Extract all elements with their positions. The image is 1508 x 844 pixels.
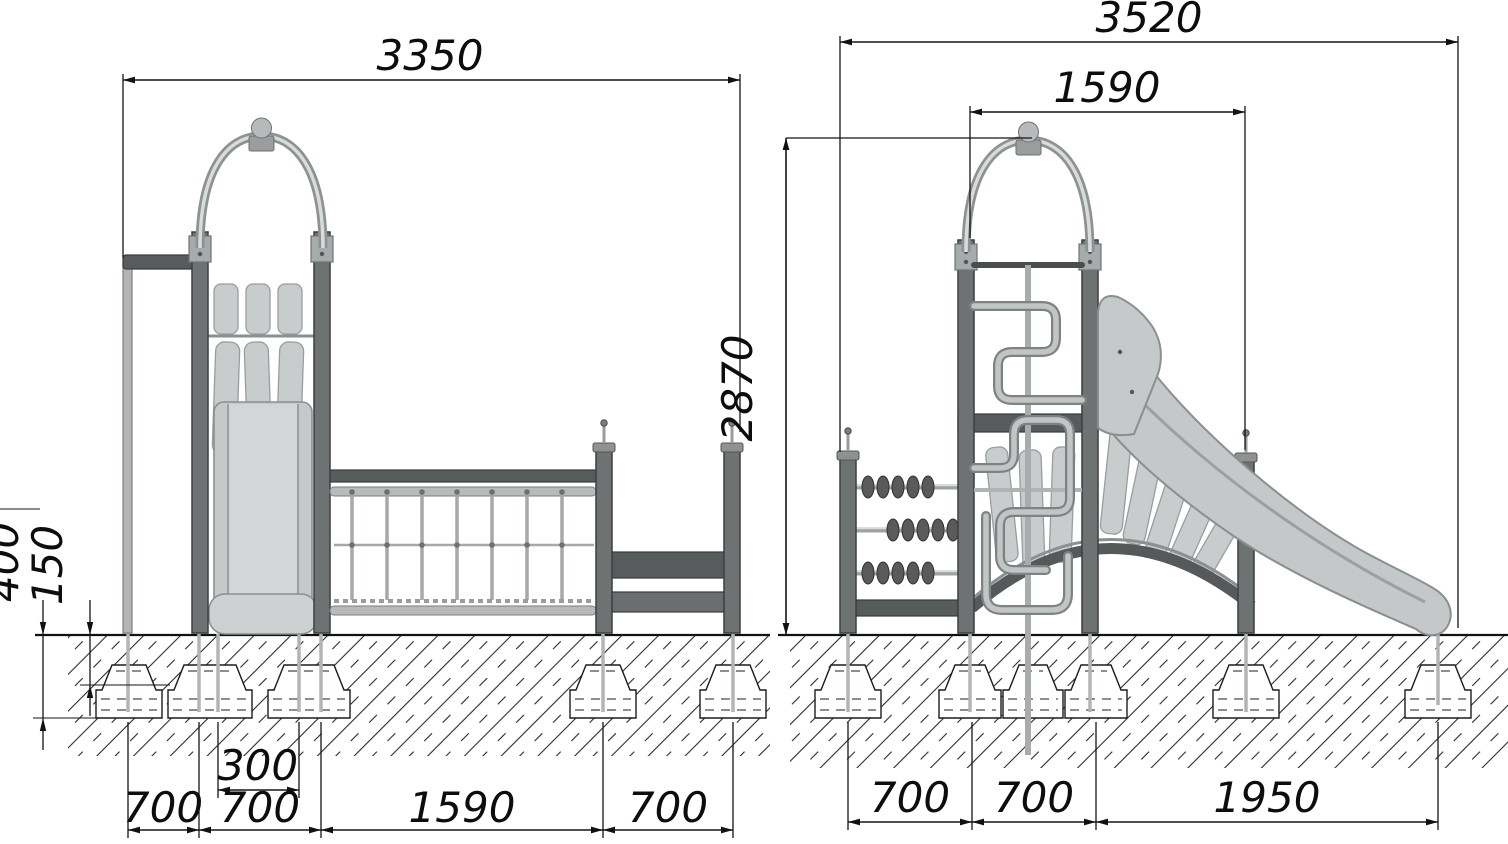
dim-side-overall-height-text: 2870 (713, 335, 762, 442)
slide-end-lip (209, 594, 317, 634)
dim-front-overall-width-text: 3350 (377, 31, 484, 80)
slide-end-chute (228, 404, 298, 600)
installation-drawing: 3350 400 150 300 (0, 0, 1508, 844)
net-top-tube (330, 487, 596, 496)
end-post-left (596, 450, 612, 633)
end-frame-bar-lower (612, 592, 724, 612)
end-frame-bar-upper (612, 552, 724, 578)
side-post-left (958, 240, 974, 633)
handrail-pole (123, 262, 132, 633)
arch-finial-ball (252, 118, 272, 138)
side-post-right (1082, 240, 1098, 633)
side-view: 3520 1590 2870 700 (713, 0, 1508, 830)
end-frame (593, 420, 743, 633)
side-ground-section (778, 635, 1508, 768)
dim-side-span3-text: 1950 (1214, 773, 1321, 822)
abacus-post (840, 458, 856, 633)
front-view: 3350 400 150 300 (0, 31, 770, 838)
net-top-rail (330, 470, 596, 482)
side-finial-ball (1019, 122, 1039, 142)
entry-handrail (123, 255, 201, 633)
net-bottom-tube (330, 606, 596, 615)
side-arch (966, 140, 1090, 252)
dim-side-span2-text: 700 (994, 773, 1074, 822)
net-bridge (330, 470, 596, 615)
dim-front-span4-text: 700 (628, 783, 708, 832)
front-arch (200, 136, 323, 248)
side-ground-hatch (790, 636, 1508, 768)
dim-front-span1-text: 700 (123, 783, 203, 832)
drawing-canvas: 3350 400 150 300 (0, 0, 1508, 844)
dim-side-overall-width-text: 3520 (1096, 0, 1203, 42)
dim-front-span3-text: 1590 (409, 783, 516, 832)
abacus-frame (837, 428, 960, 633)
front-post-left (192, 232, 208, 633)
dim-side-post-spacing-text: 1590 (1054, 63, 1161, 112)
slide-end-view (209, 402, 317, 634)
dim-front-span2-text: 700 (220, 783, 300, 832)
slide-side-view (1098, 296, 1451, 635)
front-post-right (314, 232, 330, 633)
dim-foundation-top-depth-text: 150 (23, 525, 72, 605)
dim-side-span1-text: 700 (870, 773, 950, 822)
abacus-bottom-bar (856, 600, 958, 616)
end-post-right (724, 450, 740, 633)
